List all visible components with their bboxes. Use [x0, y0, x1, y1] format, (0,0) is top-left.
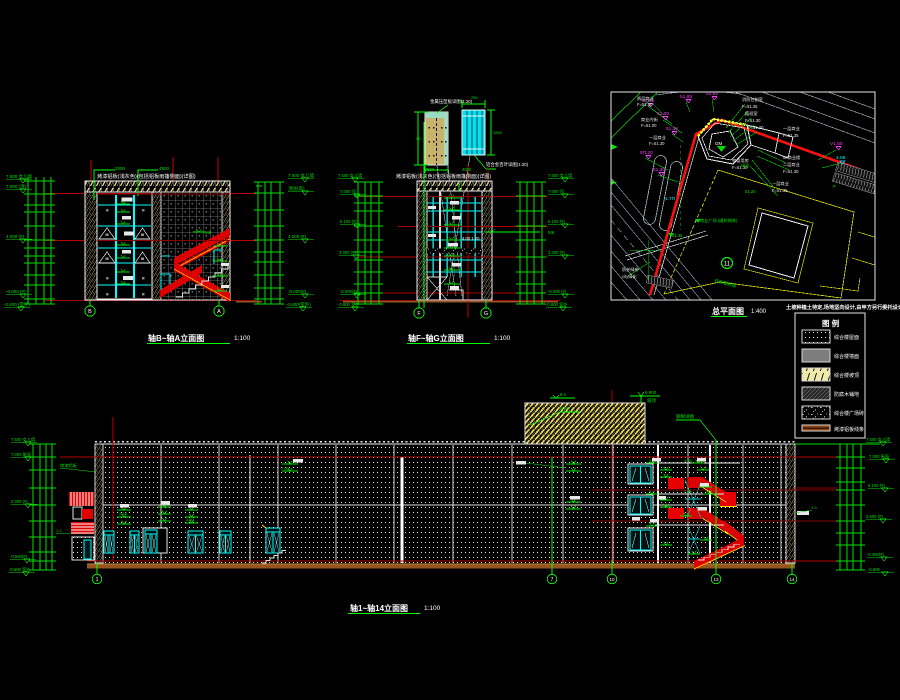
- svg-text:-0.000(#): -0.000(#): [340, 289, 358, 294]
- svg-text:钢梯详图: 钢梯详图: [676, 413, 694, 420]
- svg-text:综合楼广场砖: 综合楼广场砖: [834, 410, 864, 417]
- svg-text:51.89: 51.89: [680, 94, 692, 100]
- svg-text:5.100 (#): 5.100 (#): [868, 483, 885, 488]
- svg-text:4.65: 4.65: [684, 458, 693, 463]
- svg-text:11: 11: [724, 262, 731, 268]
- svg-text:4500: 4500: [425, 167, 435, 172]
- svg-text:4.000 (#): 4.000 (#): [6, 234, 25, 239]
- svg-text:B: B: [88, 309, 92, 315]
- svg-text:商业内街: 商业内街: [641, 116, 658, 123]
- svg-text:4.00 1.20: 4.00 1.20: [462, 236, 480, 241]
- svg-text:M6: M6: [548, 230, 555, 235]
- svg-text:F=51.20: F=51.20: [748, 125, 764, 130]
- svg-text:F=51.35: F=51.35: [783, 133, 799, 138]
- svg-text:3.300 (#): 3.300 (#): [339, 250, 356, 255]
- svg-text:4500: 4500: [462, 167, 472, 172]
- svg-text:9.900: 9.900: [645, 390, 657, 395]
- svg-text:4.000 (#): 4.000 (#): [288, 234, 307, 239]
- svg-text:F=51.35: F=51.35: [772, 188, 788, 193]
- svg-text:1.7П: 1.7П: [665, 196, 676, 202]
- svg-text:2500: 2500: [115, 166, 126, 171]
- svg-text:7.00: 7.00: [281, 466, 290, 471]
- svg-text:V1.50: V1.50: [830, 141, 843, 147]
- svg-text:50: 50: [416, 136, 421, 141]
- svg-text:轴1~轴14立面图: 轴1~轴14立面图: [350, 603, 408, 613]
- svg-text:5П.20: 5П.20: [640, 150, 653, 156]
- svg-text:综合楼墙面: 综合楼墙面: [834, 353, 859, 360]
- svg-text:51.35: 51.35: [672, 233, 683, 238]
- svg-text:轴F~轴G立面图: 轴F~轴G立面图: [408, 333, 464, 343]
- svg-text:防腐木铺地: 防腐木铺地: [834, 391, 859, 398]
- svg-text:F=51.30: F=51.30: [649, 141, 665, 146]
- svg-text:2.600 (#): 2.600 (#): [866, 514, 883, 519]
- svg-text:G: G: [484, 311, 488, 317]
- svg-text:1.2: 1.2: [56, 528, 62, 533]
- svg-text:综合楼屋面: 综合楼屋面: [834, 334, 859, 341]
- svg-text:F=51.30: F=51.30: [745, 118, 761, 123]
- svg-text:消防控制室: 消防控制室: [742, 96, 763, 103]
- svg-text:A: A: [217, 309, 221, 315]
- svg-text:51.35: 51.35: [666, 126, 678, 132]
- svg-text:-0.500(#): -0.500(#): [10, 554, 28, 559]
- svg-text:3.300 (#): 3.300 (#): [548, 250, 565, 255]
- svg-text:图 例: 图 例: [822, 318, 840, 328]
- svg-text:-0.000 (#): -0.000 (#): [548, 289, 567, 294]
- svg-text:总平面图: 总平面图: [712, 306, 744, 316]
- svg-text:1:100: 1:100: [424, 605, 441, 612]
- svg-text:F=51.00: F=51.00: [641, 123, 657, 128]
- svg-text:绿化: 绿化: [741, 162, 750, 169]
- svg-text:M8: M8: [205, 230, 212, 235]
- svg-text:1500: 1500: [493, 130, 503, 135]
- svg-text:GM: GM: [715, 141, 723, 146]
- svg-text:一层商业: 一层商业: [783, 125, 800, 132]
- svg-text:4500: 4500: [159, 166, 170, 171]
- svg-text:2.35: 2.35: [684, 489, 693, 494]
- svg-text:13: 13: [713, 577, 719, 582]
- svg-text:F=51.30: F=51.30: [783, 169, 799, 174]
- svg-text:1: 1: [96, 577, 99, 583]
- svg-text:-0.000 (#): -0.000 (#): [6, 289, 26, 294]
- svg-text:5.100 (#): 5.100 (#): [548, 219, 565, 224]
- svg-text:烤漆铝板(浅灰色)(包括铝板雨篷侧面)(详图): 烤漆铝板(浅灰色)(包括铝板雨篷侧面)(详图): [97, 172, 196, 180]
- svg-text:-0.450(#): -0.450(#): [867, 552, 885, 557]
- svg-text:F=51.30: F=51.30: [637, 102, 653, 107]
- svg-text:综合楼坡顶: 综合楼坡顶: [834, 372, 859, 379]
- svg-text:780: 780: [471, 95, 478, 100]
- svg-text:一层商业: 一层商业: [772, 180, 789, 187]
- svg-text:8.4: 8.4: [560, 392, 566, 397]
- svg-text:-0.000(#): -0.000(#): [288, 289, 307, 294]
- svg-text:F=51.35: F=51.35: [742, 104, 758, 109]
- svg-text:值班室: 值班室: [745, 110, 758, 117]
- svg-text:1:100: 1:100: [234, 335, 251, 342]
- svg-text:2.10: 2.10: [119, 511, 128, 516]
- svg-text:7: 7: [551, 577, 554, 583]
- svg-text:烤漆铝板线条: 烤漆铝板线条: [834, 426, 864, 433]
- svg-text:14: 14: [789, 577, 795, 582]
- svg-text:city绿化: city绿化: [622, 273, 637, 280]
- svg-text:一层商业: 一层商业: [649, 134, 666, 141]
- svg-text:-0.600: -0.600: [868, 567, 881, 572]
- svg-text:二层商业: 二层商业: [783, 161, 800, 168]
- svg-text:51.30: 51.30: [653, 167, 665, 173]
- svg-text:5#商业楼: 5#商业楼: [783, 154, 800, 161]
- svg-text:烤漆铝板: 烤漆铝板: [60, 462, 78, 469]
- svg-text:51.20: 51.20: [745, 189, 756, 194]
- svg-text:轴B~轴A立面图: 轴B~轴A立面图: [148, 333, 204, 343]
- svg-text:51.00: 51.00: [657, 111, 669, 117]
- svg-text:铝合金百叶详图(1:20): 铝合金百叶详图(1:20): [486, 161, 529, 168]
- svg-text:1:100: 1:100: [494, 335, 511, 342]
- svg-text:两层商业: 两层商业: [637, 95, 654, 102]
- svg-text:1:400: 1:400: [751, 309, 767, 315]
- svg-text:10: 10: [609, 577, 615, 582]
- svg-text:1.9: 1.9: [811, 505, 817, 510]
- svg-text:P: P: [833, 184, 836, 189]
- svg-text:5.100 (#): 5.100 (#): [340, 219, 357, 224]
- svg-text:土坡种植土待定,场地坚向设计,由甲方另行委托设计。: 土坡种植土待定,场地坚向设计,由甲方另行委托设计。: [786, 303, 900, 311]
- svg-text:防护绿带: 防护绿带: [622, 266, 639, 273]
- svg-text:商业广场 (硬质铺装): 商业广场 (硬质铺装): [700, 217, 738, 224]
- svg-text:4.05: 4.05: [836, 155, 846, 161]
- svg-text:8.90: 8.90: [560, 406, 569, 411]
- svg-text:坡顶: 坡顶: [647, 397, 656, 404]
- svg-text:2.000 (#): 2.000 (#): [11, 499, 28, 504]
- svg-text:2.40: 2.40: [186, 517, 195, 522]
- svg-text:烤漆铝板(浅灰色)(包括铝板雨篷侧面)(详图): 烤漆铝板(浅灰色)(包括铝板雨篷侧面)(详图): [396, 173, 491, 180]
